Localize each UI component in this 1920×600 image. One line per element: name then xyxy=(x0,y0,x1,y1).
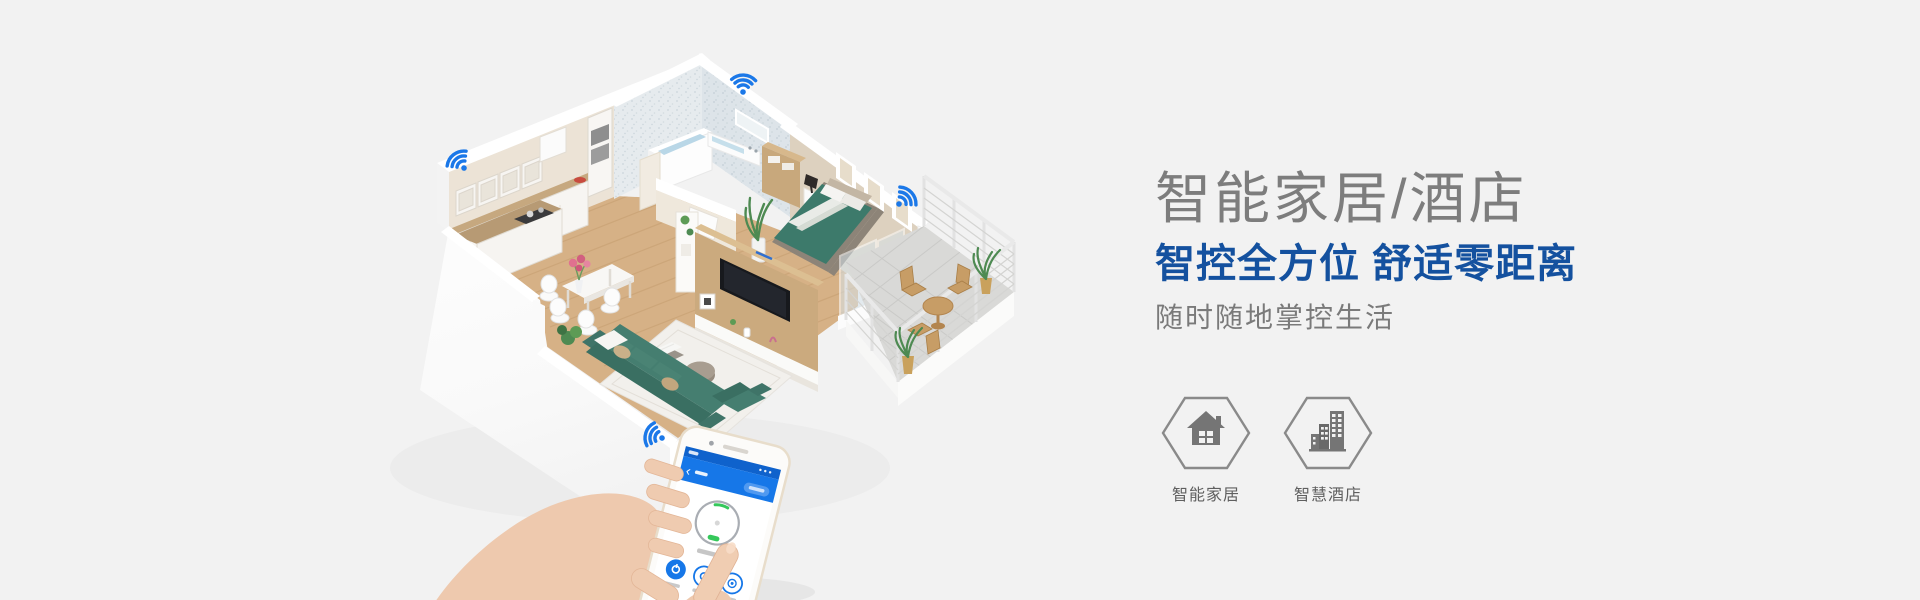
feature-smart-home[interactable]: 智能家居 xyxy=(1160,394,1252,505)
page-title: 智能家居/酒店 xyxy=(1155,168,1715,230)
hero-tagline: 随时随地掌控生活 xyxy=(1155,302,1715,334)
hero-text-block: 智能家居/酒店 智控全方位 舒适零距离 随时随地掌控生活 xyxy=(1155,168,1715,334)
feature-label: 智能家居 xyxy=(1172,481,1240,505)
hotel-buildings-icon xyxy=(1309,411,1346,452)
house-icon xyxy=(1187,411,1225,445)
hero-subtitle: 智控全方位 舒适零距离 xyxy=(1155,242,1715,286)
feature-smart-hotel[interactable]: 智慧酒店 xyxy=(1282,394,1374,505)
house-hexagon-icon xyxy=(1160,394,1252,472)
feature-label: 智慧酒店 xyxy=(1294,481,1362,505)
hotel-hexagon-icon xyxy=(1282,394,1374,472)
feature-list: 智能家居 智慧酒店 xyxy=(1160,394,1374,505)
